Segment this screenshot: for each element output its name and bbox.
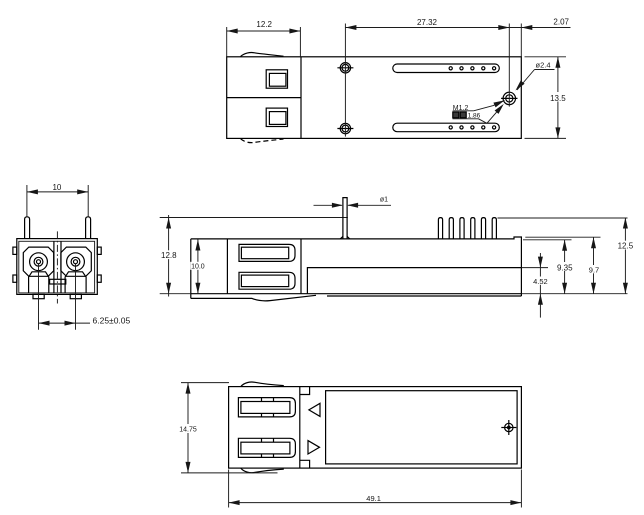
svg-text:27.32: 27.32 (417, 18, 438, 27)
svg-text:12.2: 12.2 (256, 20, 272, 29)
svg-text:14.75: 14.75 (179, 427, 197, 434)
svg-text:13.5: 13.5 (550, 94, 566, 103)
svg-text:10: 10 (52, 183, 61, 192)
svg-text:9.35: 9.35 (557, 263, 573, 272)
svg-text:12.5: 12.5 (618, 242, 634, 251)
svg-text:ø2.4: ø2.4 (536, 60, 551, 69)
svg-text:2.07: 2.07 (553, 18, 569, 27)
svg-text:10.0: 10.0 (191, 264, 205, 271)
svg-text:6.25±0.05: 6.25±0.05 (93, 316, 131, 326)
svg-text:4.52: 4.52 (533, 277, 548, 286)
svg-text:12.8: 12.8 (161, 251, 177, 260)
svg-text:ø1: ø1 (380, 197, 388, 204)
svg-text:49.1: 49.1 (366, 494, 381, 503)
svg-text:9.7: 9.7 (589, 265, 599, 274)
